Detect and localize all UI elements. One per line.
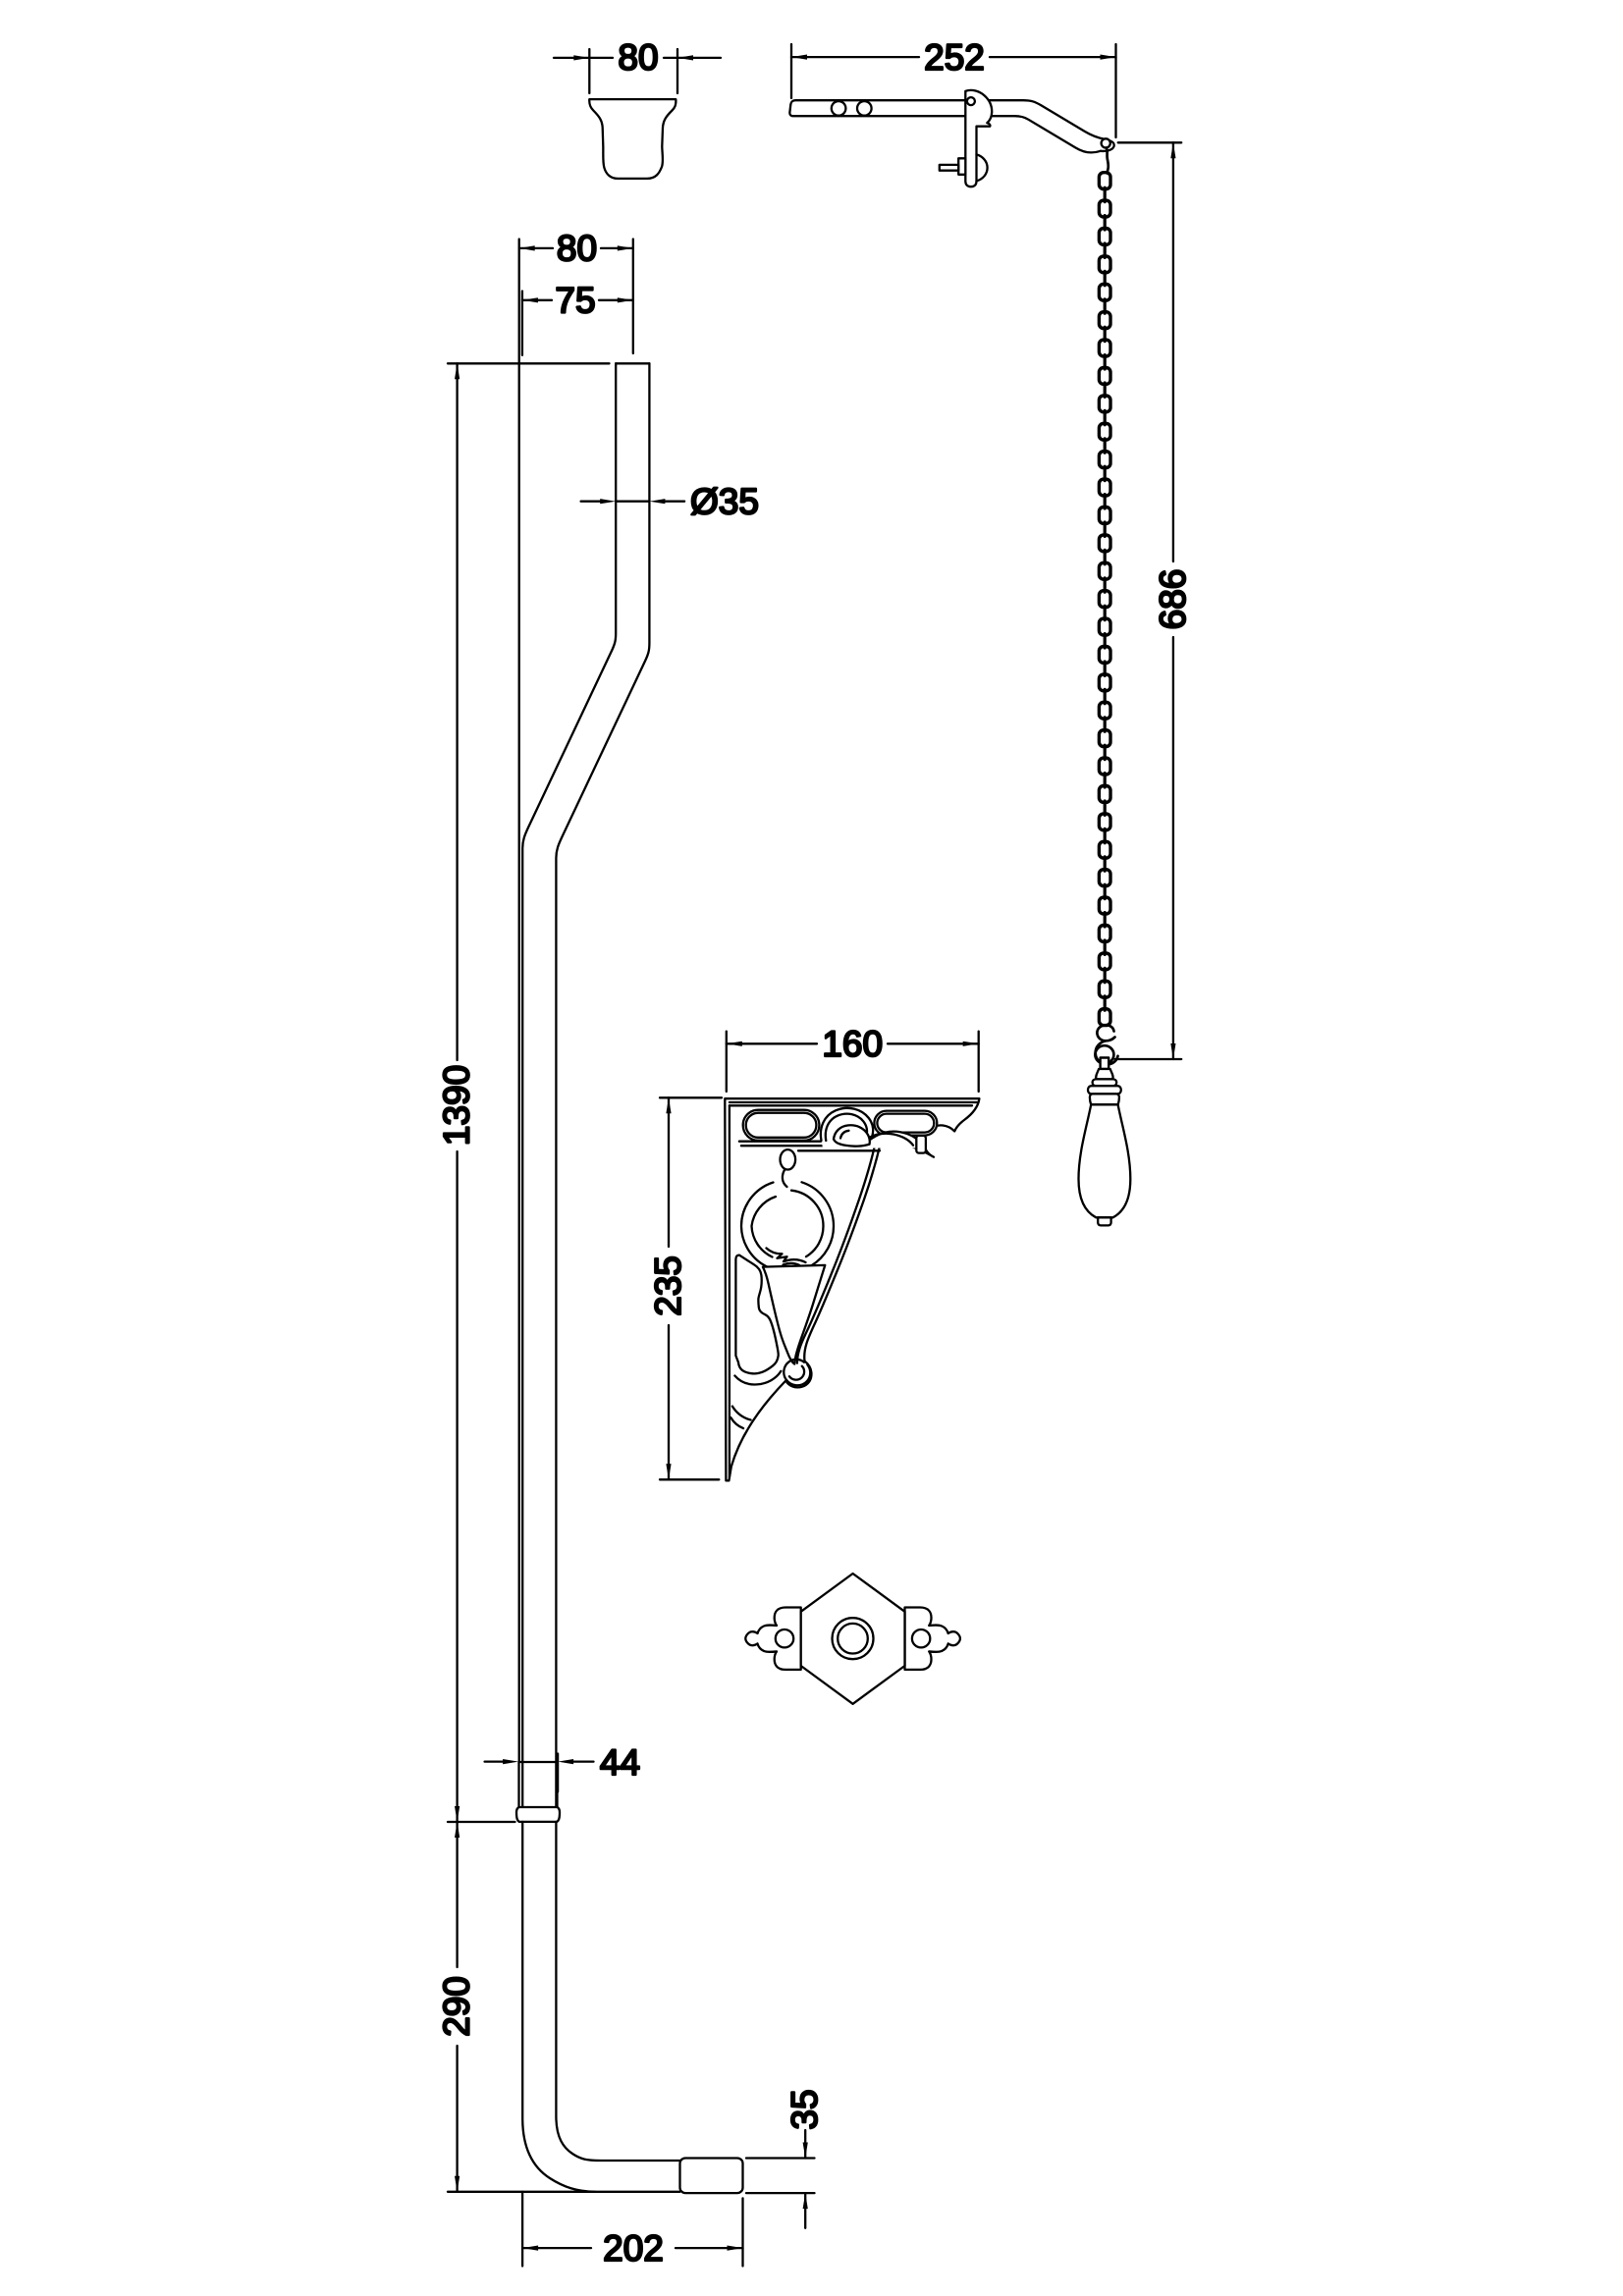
svg-text:252: 252 bbox=[924, 37, 985, 78]
svg-text:75: 75 bbox=[555, 281, 595, 321]
svg-text:160: 160 bbox=[822, 1024, 883, 1064]
svg-text:80: 80 bbox=[618, 37, 658, 78]
svg-text:686: 686 bbox=[1153, 569, 1193, 630]
svg-text:Ø35: Ø35 bbox=[690, 482, 759, 522]
svg-text:44: 44 bbox=[600, 1742, 640, 1783]
svg-text:1390: 1390 bbox=[436, 1065, 476, 1146]
svg-text:202: 202 bbox=[603, 2228, 664, 2269]
svg-text:35: 35 bbox=[784, 2089, 825, 2129]
svg-text:80: 80 bbox=[557, 229, 597, 269]
svg-text:290: 290 bbox=[436, 1976, 476, 2037]
svg-text:235: 235 bbox=[648, 1255, 688, 1316]
